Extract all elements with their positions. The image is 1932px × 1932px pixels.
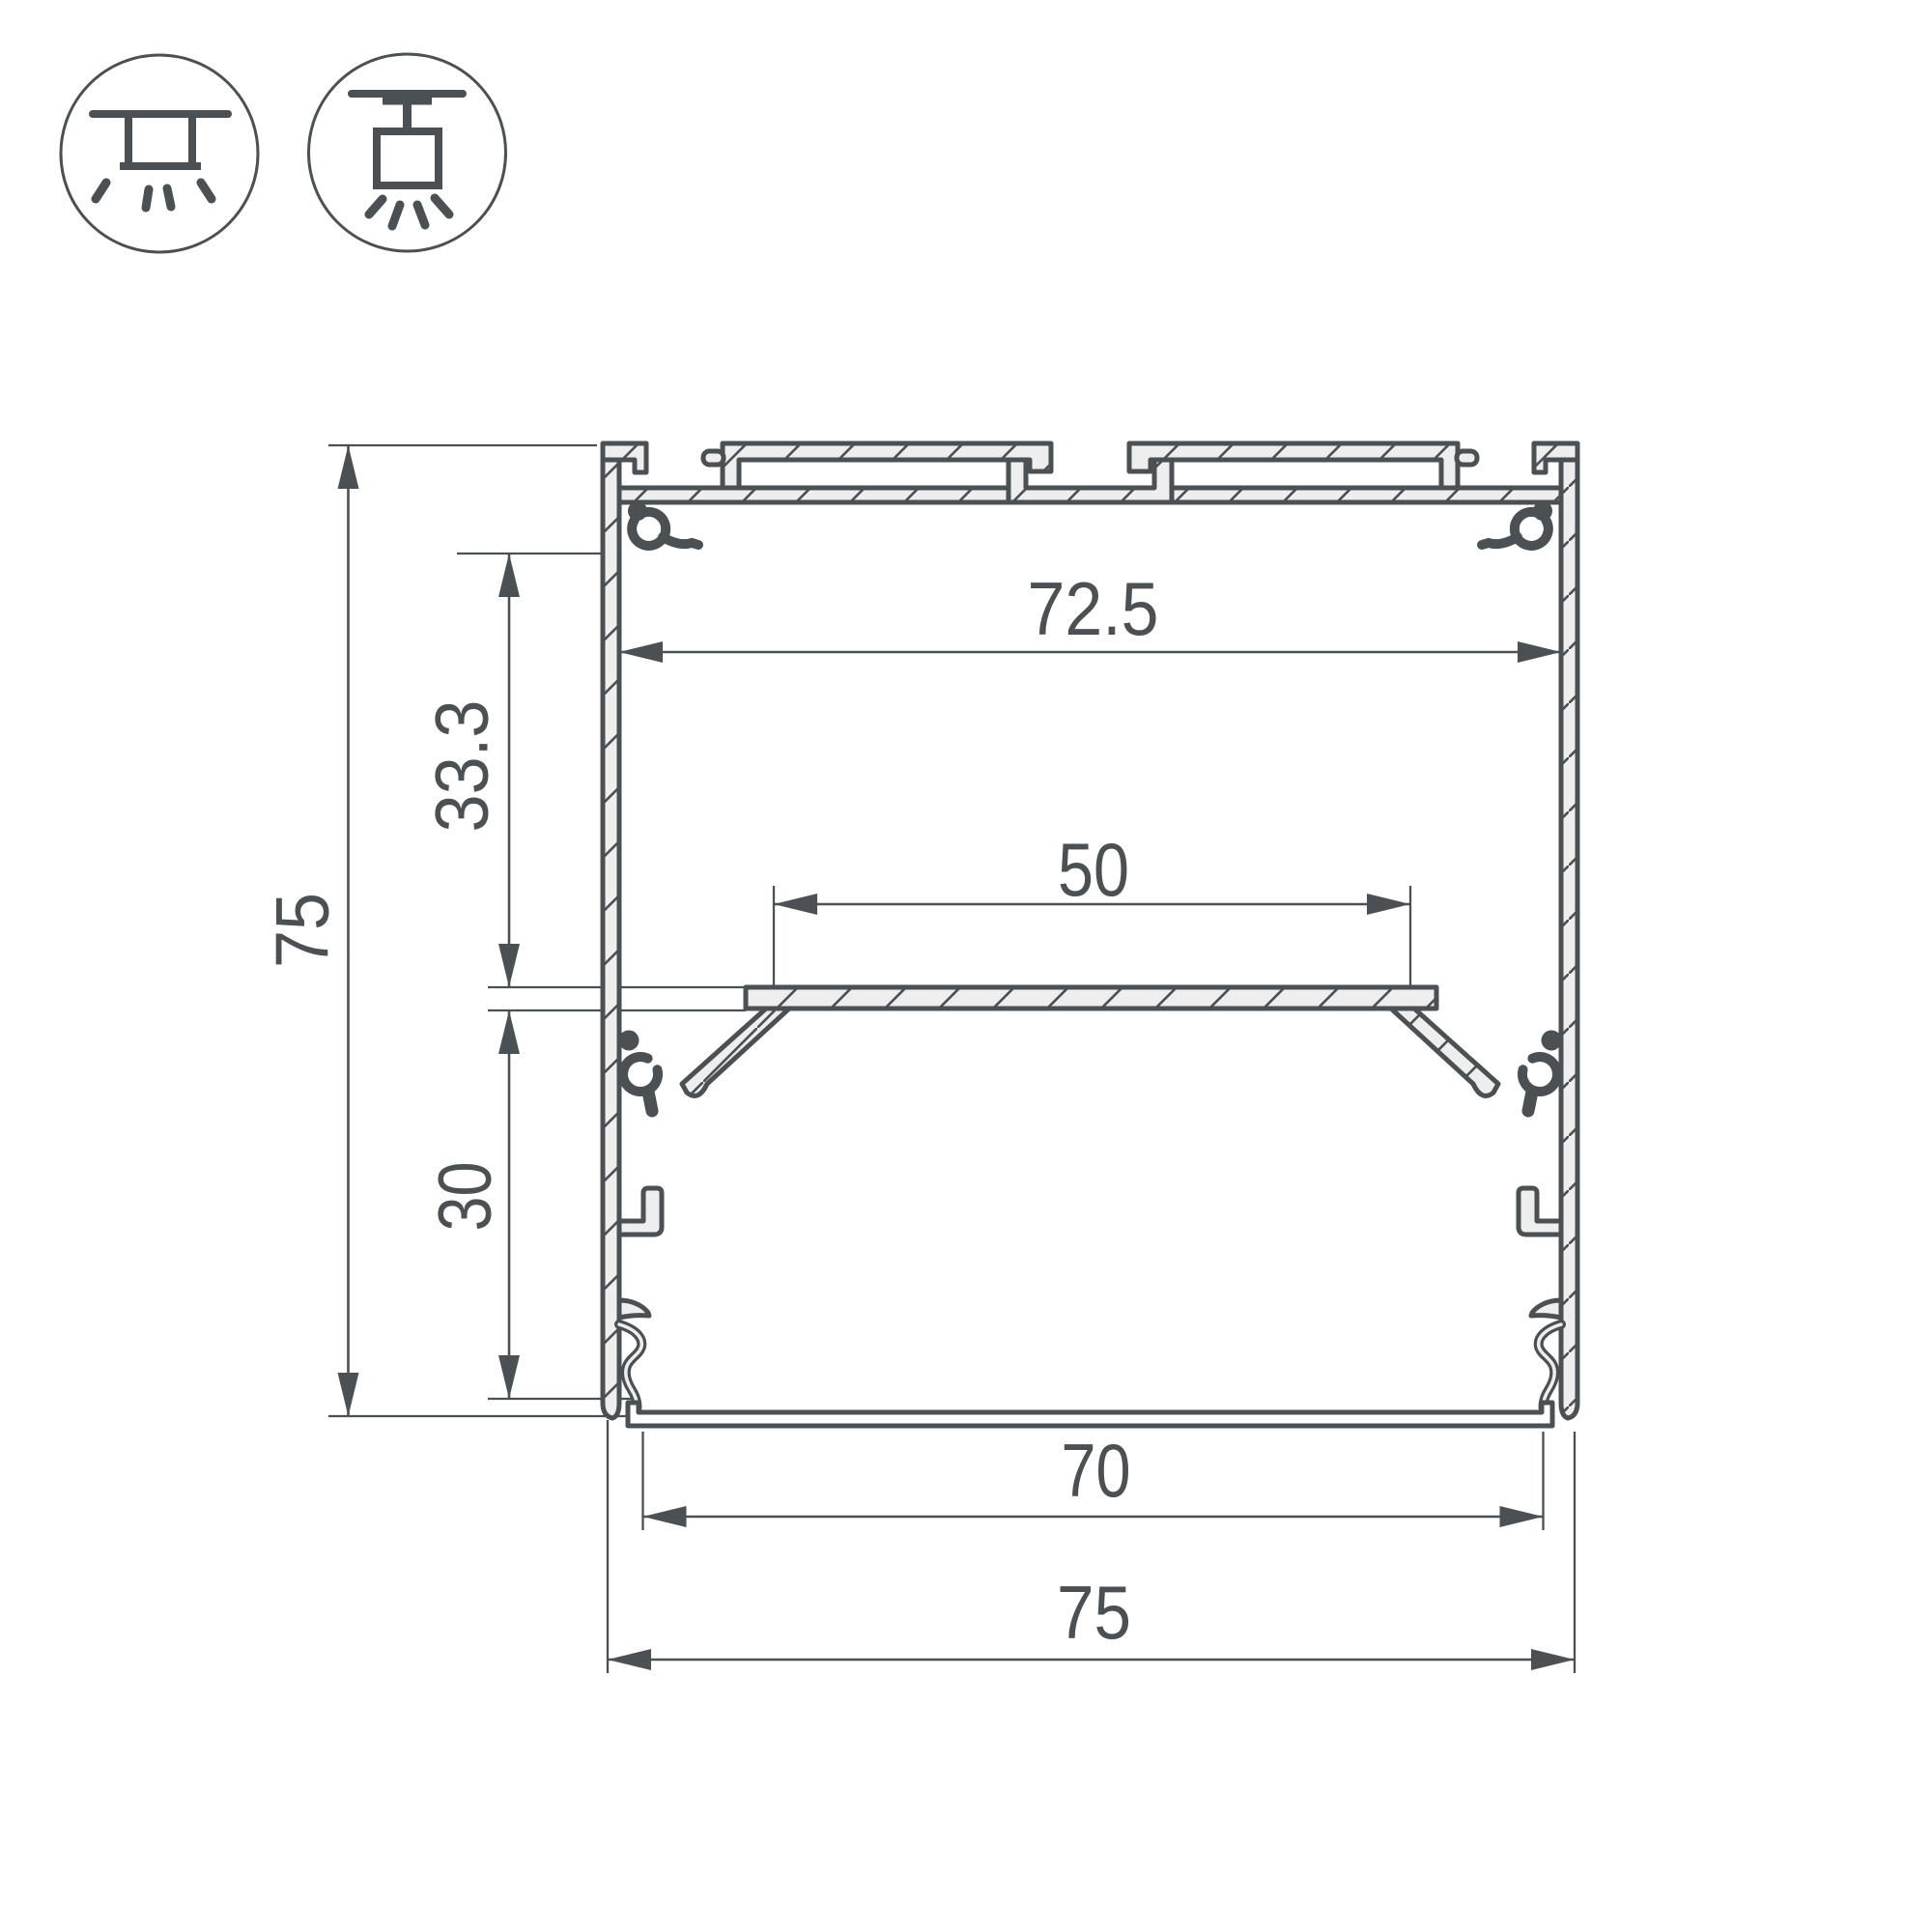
svg-text:30: 30 [422,1162,507,1232]
svg-text:70: 70 [1062,1428,1131,1513]
svg-text:33.3: 33.3 [419,700,504,833]
svg-text:75: 75 [260,893,345,968]
svg-text:75: 75 [1057,1570,1131,1655]
svg-text:50: 50 [1058,827,1129,912]
svg-text:72.5: 72.5 [1028,566,1159,651]
